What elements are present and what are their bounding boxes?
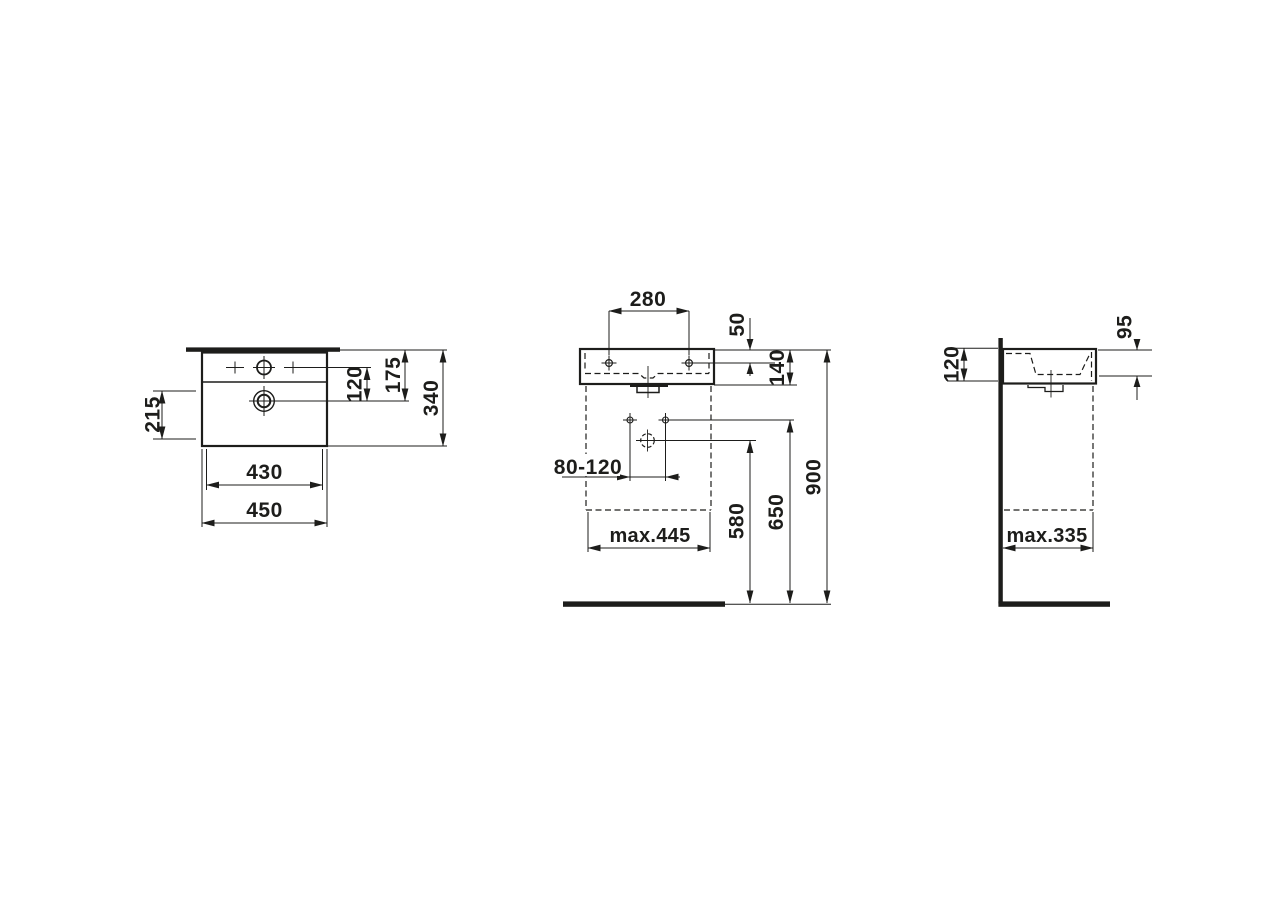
dim-front-900: 900 [803,350,828,603]
dim-front-580-label: 580 [726,503,749,540]
dim-front-280-label: 280 [630,288,667,311]
dim-front-max445: max.445 [588,512,710,552]
washbasin-drawing: 120 175 340 215 430 [0,0,1280,900]
dim-front-140: 140 [766,349,790,386]
basin-outline-front [580,349,714,384]
dim-side-95: 95 [1098,315,1152,400]
fixing-hole-right [682,356,776,371]
technical-drawing-page: 120 175 340 215 430 [0,0,1280,900]
dim-side-max335: max.335 [1003,512,1093,552]
dim-top-215: 215 [142,391,197,439]
dim-front-140-label: 140 [766,349,789,386]
dim-top-430: 430 [207,449,323,490]
projection-dashed-side [1004,386,1093,510]
tap-hole [253,356,275,379]
basin-outline-side [1003,349,1096,384]
dim-top-215-label: 215 [142,396,165,433]
dim-front-280: 280 [609,288,689,355]
dim-top-120-label: 120 [344,366,367,403]
floor-line-front [563,601,725,606]
bowl-hidden-lines-side [1006,352,1092,381]
front-view: 280 50 140 [554,288,831,607]
top-view: 120 175 340 215 430 [142,347,448,527]
dim-front-80-120-label: 80-120 [554,456,622,479]
wall-edge-bar [186,347,340,351]
dim-side-120: 120 [941,346,999,383]
dim-side-120-label: 120 [941,346,964,383]
dim-front-50-label: 50 [726,312,749,336]
supply-connection-right [659,413,795,481]
dim-top-175: 175 [382,350,405,401]
waste-connection [636,430,756,452]
dim-side-95-label: 95 [1114,315,1137,339]
floor-line-side [998,601,1110,606]
supply-connection-left [623,413,637,481]
projection-dashed-front [586,386,711,510]
dim-top-340-label: 340 [420,380,443,417]
optional-tap-hole-left [226,362,244,374]
dim-top-450-label: 450 [246,499,283,522]
dim-front-650-label: 650 [765,494,788,531]
dim-side-max335-label: max.335 [1006,525,1087,547]
dim-front-580: 580 [726,441,751,604]
dim-top-175-label: 175 [382,357,405,394]
dim-front-650: 650 [765,420,790,603]
dim-front-900-label: 900 [803,459,826,496]
dim-front-80-120: 80-120 [554,454,680,480]
dim-front-max445-label: max.445 [609,525,690,547]
dim-top-430-label: 430 [246,461,283,484]
fixing-hole-left [602,356,617,371]
dim-top-120: 120 [344,366,368,403]
side-view: 120 95 max.335 [941,315,1153,607]
dim-front-50: 50 [726,312,753,376]
waste-outlet-front [630,366,668,398]
